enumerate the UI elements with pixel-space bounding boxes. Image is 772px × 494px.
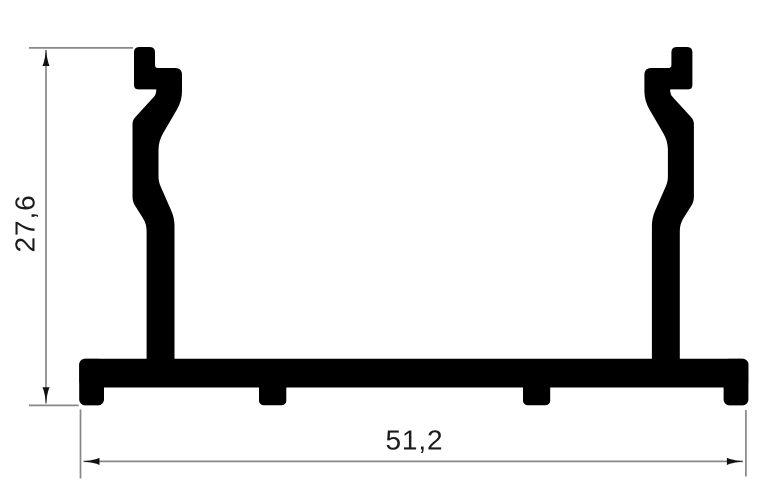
- svg-text:51,2: 51,2: [385, 425, 443, 456]
- svg-text:27,6: 27,6: [9, 194, 40, 252]
